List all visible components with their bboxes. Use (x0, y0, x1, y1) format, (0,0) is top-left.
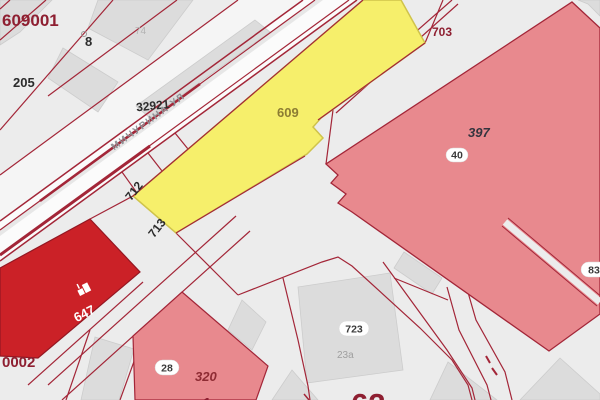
badge-28-label: 28 (161, 363, 173, 375)
building-74-label: 74 (135, 26, 147, 37)
parcel-397-label: 397 (468, 125, 490, 140)
badge-28[interactable]: 28 (155, 360, 179, 375)
badge-723[interactable]: 723 (339, 321, 369, 336)
partial-number-bottom-small: 1 (203, 395, 211, 400)
badge-83-label: 83 (588, 265, 600, 277)
parcel-703-label: 703 (432, 25, 452, 39)
parcel-205-label: 205 (13, 75, 35, 90)
partial-number-bottom: 62 (351, 387, 385, 400)
parcel-8-label: 8 (85, 34, 92, 49)
badge-40[interactable]: 40 (446, 148, 468, 162)
quarter-number-top: 609001 (2, 11, 59, 30)
parcel-609-label: 609 (277, 105, 299, 120)
parcel-320-label: 320 (195, 369, 217, 384)
badge-83[interactable]: 83 (581, 262, 600, 277)
building-23a-label: 23а (337, 350, 354, 361)
cadastral-map-viewport[interactable]: 609001 0002 32921 МИЧУРИНА УЛ 205 8 74 6… (0, 0, 600, 400)
badge-723-label: 723 (345, 324, 363, 336)
quarter-number-bottom: 0002 (2, 354, 35, 371)
badge-40-label: 40 (451, 150, 463, 162)
map-canvas[interactable]: 609001 0002 32921 МИЧУРИНА УЛ 205 8 74 6… (0, 0, 600, 400)
